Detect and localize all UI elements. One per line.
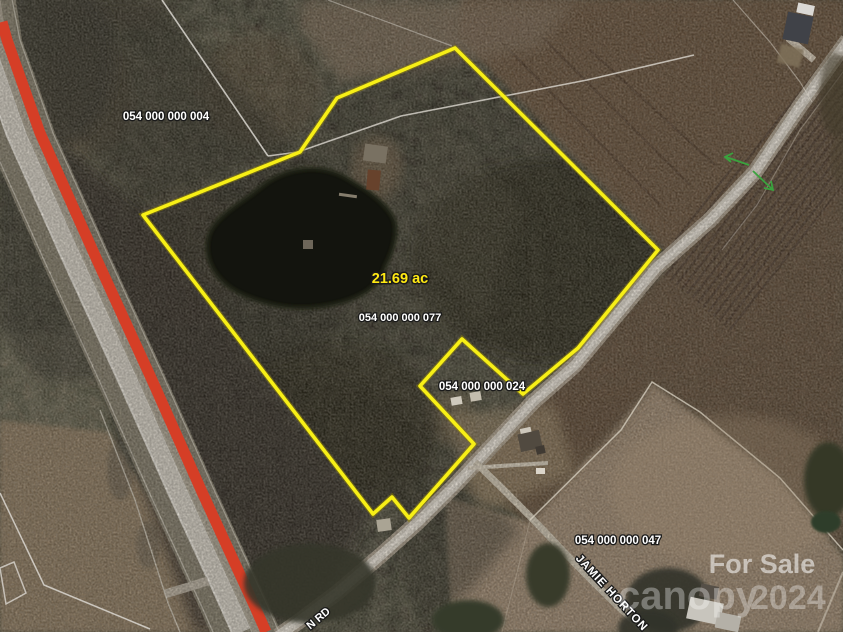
svg-text:054 000 000 077: 054 000 000 077 <box>359 312 442 324</box>
svg-text:054 000 000 047: 054 000 000 047 <box>575 535 661 547</box>
svg-text:canopy: canopy <box>618 574 759 618</box>
svg-text:2024: 2024 <box>750 579 826 617</box>
svg-text:054 000 000 004: 054 000 000 004 <box>123 111 210 123</box>
svg-text:054 000 000 024: 054 000 000 024 <box>439 381 526 393</box>
svg-text:21.69 ac: 21.69 ac <box>372 271 428 287</box>
